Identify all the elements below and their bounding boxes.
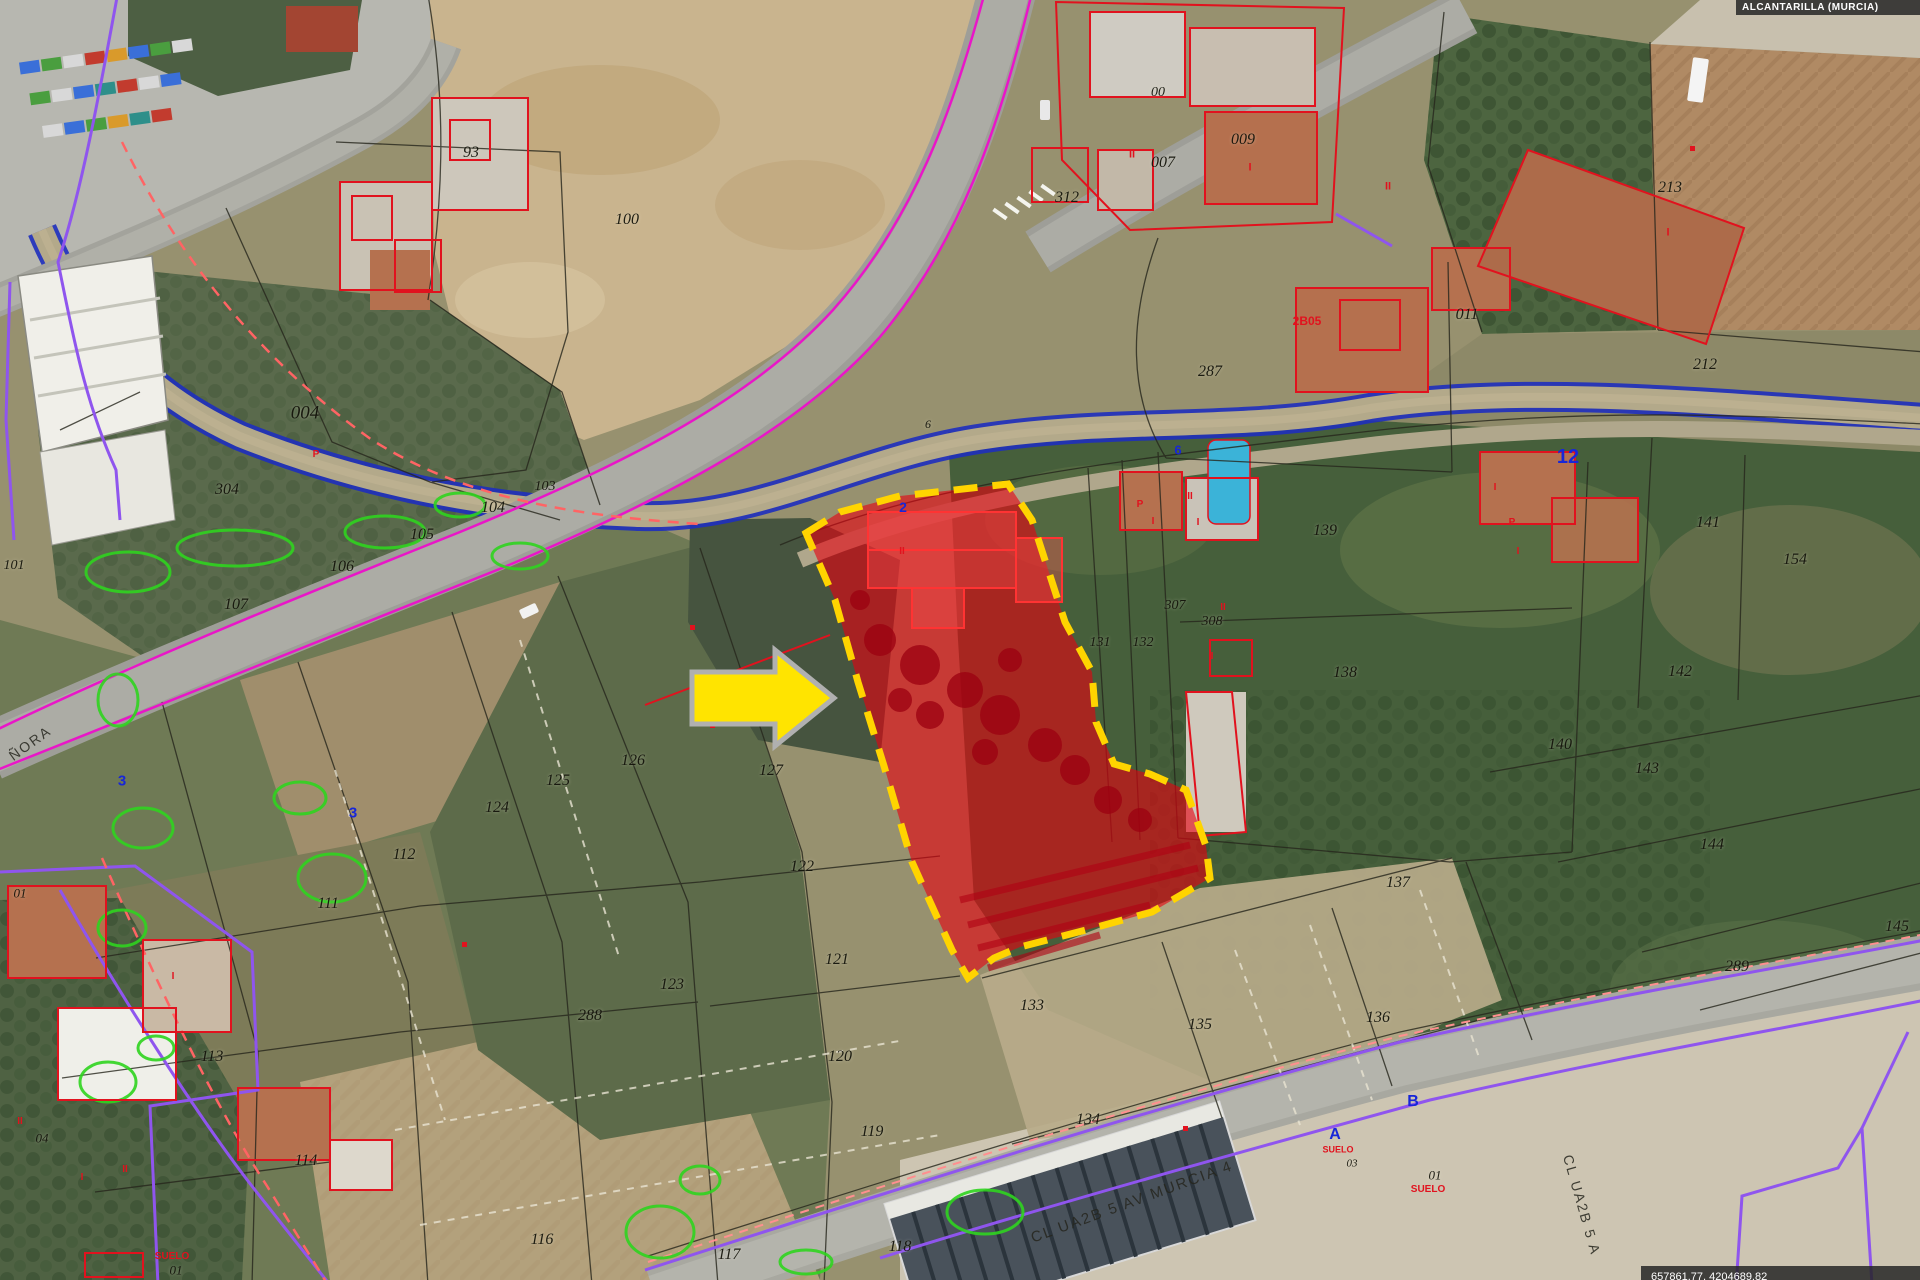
region-label: ALCANTARILLA (MURCIA) xyxy=(1742,2,1879,13)
satellite-map-viewport[interactable]: 9310031200007009011213212287304004104103… xyxy=(0,0,1920,1280)
coordinates-readout: 657861.77, 4204689.82 xyxy=(1641,1266,1920,1280)
satellite-basemap xyxy=(0,0,1920,1280)
coordinates-value: 657861.77, 4204689.82 xyxy=(1651,1271,1767,1280)
region-label-box: ALCANTARILLA (MURCIA) xyxy=(1736,0,1920,15)
